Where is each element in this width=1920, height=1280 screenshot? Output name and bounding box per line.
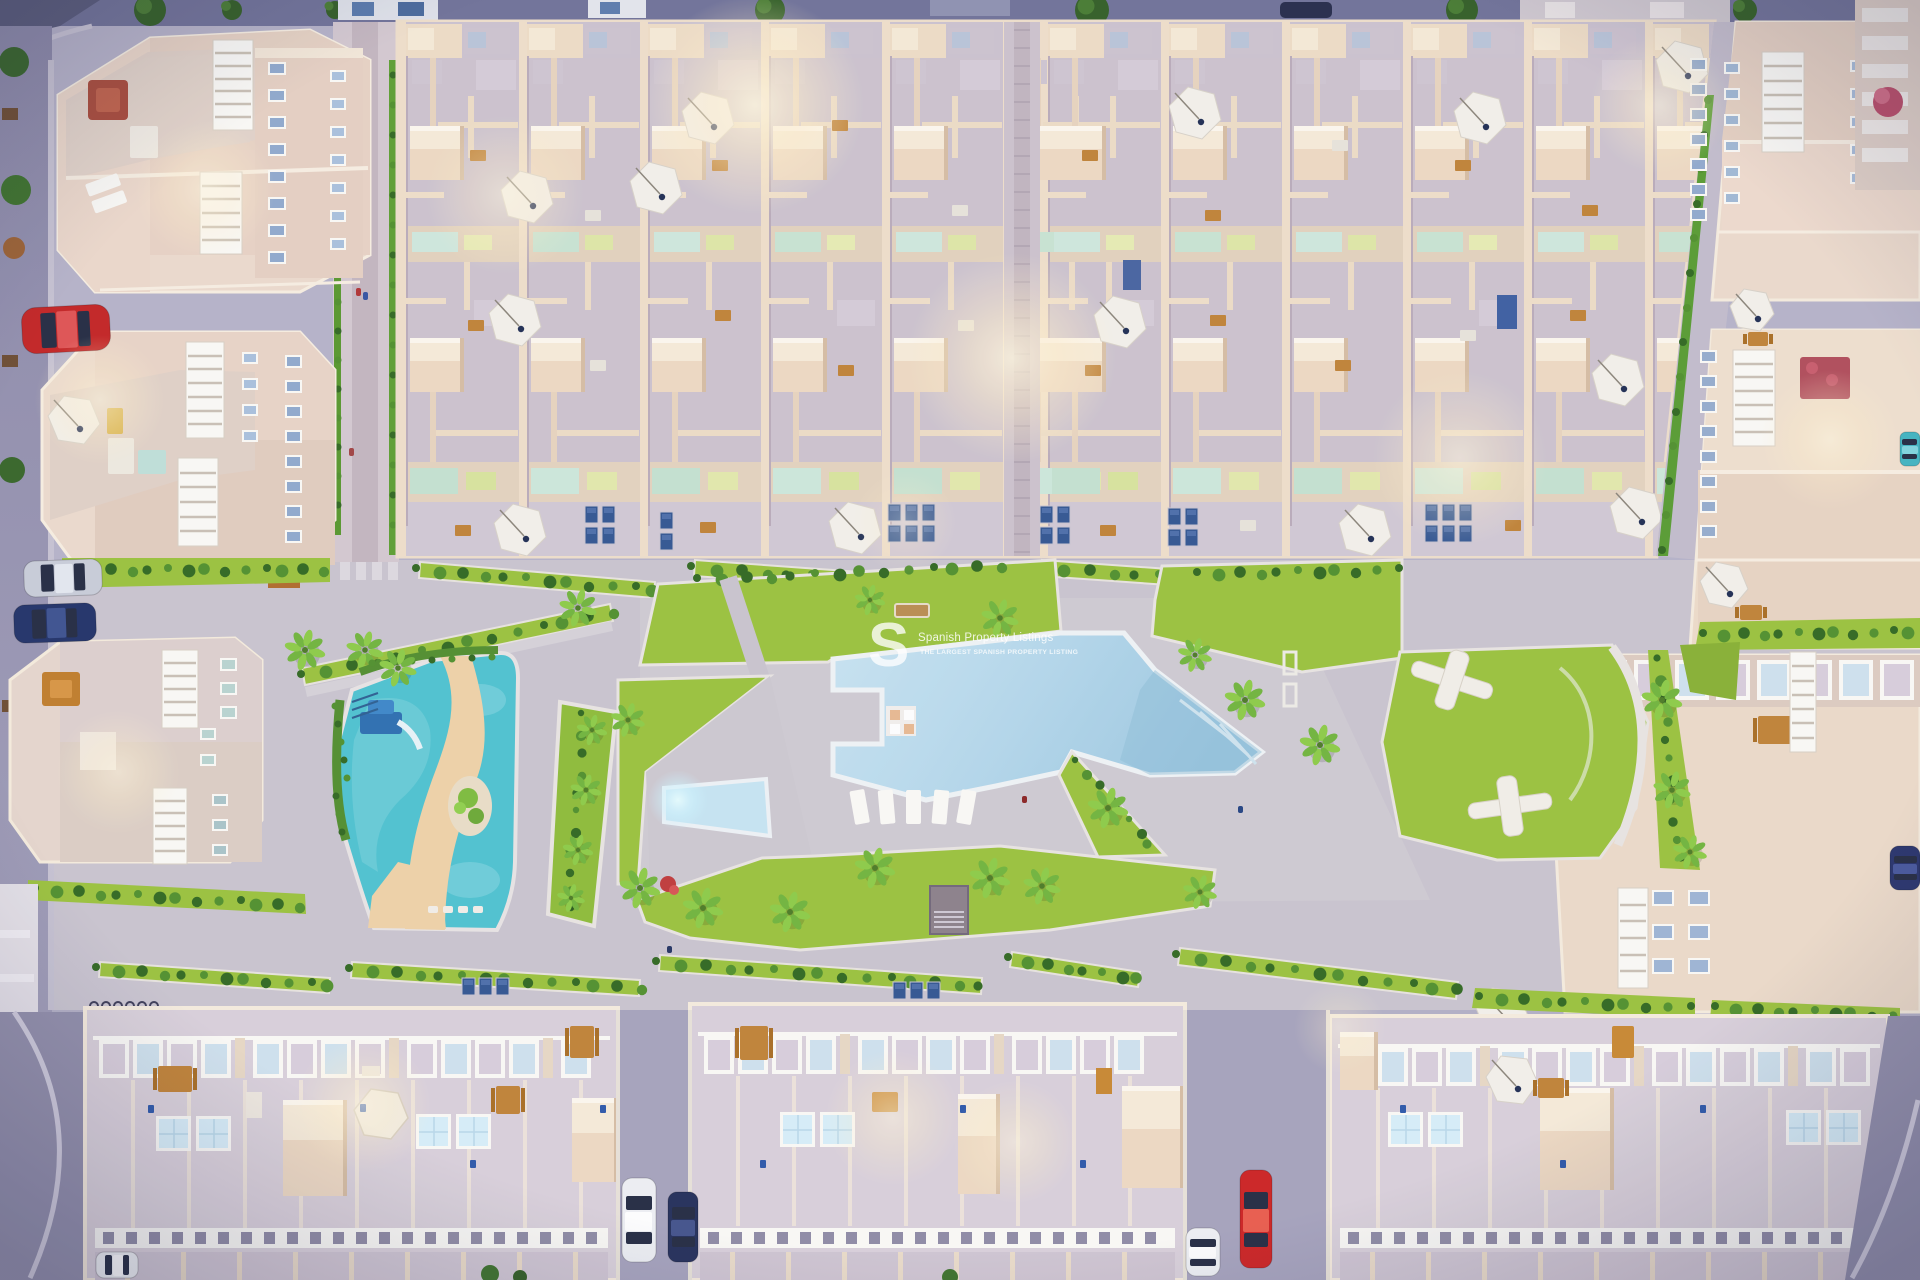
svg-text:Spanish Property Listings: Spanish Property Listings — [918, 632, 1053, 644]
svg-text:THE LARGEST SPANISH PROPERTY L: THE LARGEST SPANISH PROPERTY LISTING — [920, 649, 1078, 656]
svg-text:S: S — [868, 611, 909, 680]
